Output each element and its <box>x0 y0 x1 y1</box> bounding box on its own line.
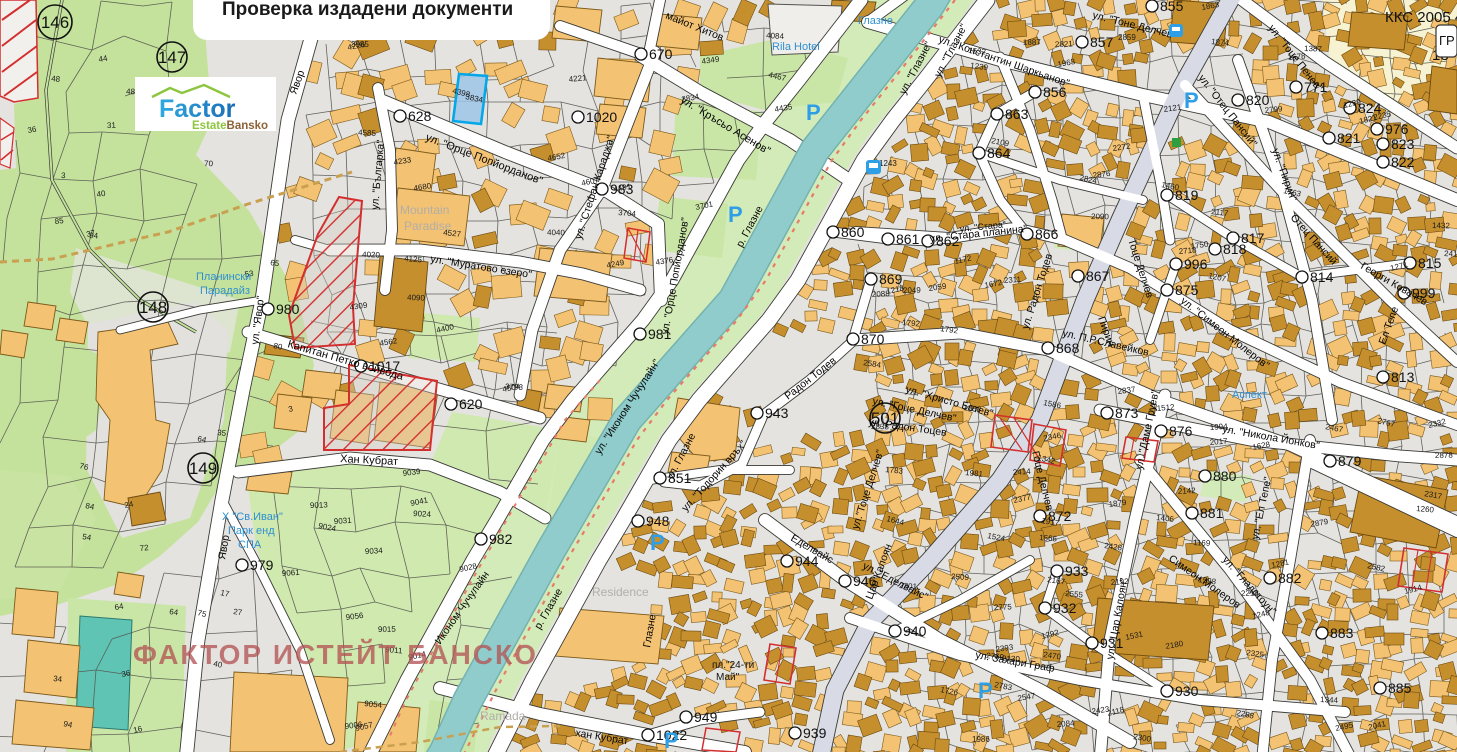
svg-text:857: 857 <box>1090 34 1114 50</box>
svg-text:821: 821 <box>1337 130 1361 146</box>
svg-text:930: 930 <box>1175 683 1199 699</box>
svg-text:9054: 9054 <box>364 699 383 710</box>
svg-text:85: 85 <box>54 216 64 226</box>
svg-text:866: 866 <box>1035 226 1059 242</box>
svg-text:2555: 2555 <box>1065 589 1084 600</box>
svg-text:3985: 3985 <box>351 40 369 49</box>
svg-text:9024: 9024 <box>413 509 432 519</box>
svg-text:48: 48 <box>51 74 61 84</box>
svg-text:2878: 2878 <box>1435 451 1454 460</box>
svg-text:1512: 1512 <box>1156 402 1175 413</box>
svg-text:Paradise: Paradise <box>404 219 452 233</box>
svg-text:ККС 2005 46: ККС 2005 46 <box>1385 9 1457 26</box>
svg-text:861: 861 <box>896 231 920 247</box>
svg-text:933: 933 <box>1065 563 1089 579</box>
svg-text:1887: 1887 <box>1023 38 1042 47</box>
svg-text:P: P <box>650 530 665 555</box>
svg-text:876: 876 <box>1169 423 1193 439</box>
svg-text:2049: 2049 <box>903 286 922 295</box>
svg-text:868: 868 <box>1056 340 1080 356</box>
svg-text:1243: 1243 <box>879 159 897 168</box>
svg-text:4090: 4090 <box>407 293 426 303</box>
svg-text:Проверка издадени документи: Проверка издадени документи <box>222 0 513 20</box>
svg-text:996: 996 <box>1184 256 1208 272</box>
svg-text:980: 980 <box>276 301 300 317</box>
svg-text:2821: 2821 <box>1055 39 1074 49</box>
svg-text:1169: 1169 <box>1193 538 1211 548</box>
svg-text:Парк енд: Парк енд <box>228 525 275 537</box>
svg-text:3704: 3704 <box>618 208 637 219</box>
svg-text:48: 48 <box>126 87 136 96</box>
svg-text:147: 147 <box>158 48 186 67</box>
svg-text:1344: 1344 <box>1320 695 1339 705</box>
svg-text:620: 620 <box>459 396 483 412</box>
svg-text:9013: 9013 <box>310 500 329 510</box>
svg-text:P: P <box>806 100 821 125</box>
svg-text:P: P <box>978 678 993 703</box>
svg-text:35: 35 <box>217 428 227 438</box>
svg-text:940: 940 <box>903 623 927 639</box>
svg-text:ГР: ГР <box>1439 33 1455 48</box>
svg-text:2088: 2088 <box>872 289 891 299</box>
svg-text:860: 860 <box>841 224 865 240</box>
svg-text:932: 932 <box>1053 600 1077 616</box>
svg-text:9061: 9061 <box>282 568 301 578</box>
svg-text:64: 64 <box>169 607 180 617</box>
svg-text:879: 879 <box>1338 453 1362 469</box>
svg-text:1566: 1566 <box>1039 533 1058 544</box>
svg-text:1874: 1874 <box>1211 37 1230 48</box>
svg-text:814: 814 <box>1310 269 1334 285</box>
svg-text:1406: 1406 <box>1156 513 1175 524</box>
svg-text:863: 863 <box>1005 106 1029 122</box>
svg-text:2859: 2859 <box>1118 33 1136 42</box>
svg-text:Аспект: Аспект <box>1232 389 1267 401</box>
svg-text:148: 148 <box>139 298 167 317</box>
svg-text:40: 40 <box>96 189 107 199</box>
svg-text:4040: 4040 <box>547 228 566 237</box>
svg-text:2799: 2799 <box>1264 104 1283 115</box>
svg-text:2084: 2084 <box>1056 718 1075 729</box>
svg-text:2017: 2017 <box>1209 436 1228 447</box>
svg-text:3798: 3798 <box>505 382 524 392</box>
svg-text:Ramada: Ramada <box>480 709 526 723</box>
svg-text:880: 880 <box>1213 468 1237 484</box>
svg-text:823: 823 <box>1391 136 1415 152</box>
svg-text:949: 949 <box>694 709 718 725</box>
svg-text:1020: 1020 <box>586 109 617 125</box>
svg-text:Май": Май" <box>716 672 740 683</box>
svg-text:4585: 4585 <box>358 128 377 138</box>
svg-text:Х "Св.Иван": Х "Св.Иван" <box>222 511 283 523</box>
svg-text:4125: 4125 <box>404 254 423 265</box>
svg-text:2311: 2311 <box>1004 275 1022 285</box>
svg-text:9015: 9015 <box>378 625 397 634</box>
svg-text:818: 818 <box>1223 241 1247 257</box>
svg-text:982: 982 <box>489 531 513 547</box>
svg-text:943: 943 <box>765 405 789 421</box>
svg-text:EstateBansko: EstateBansko <box>192 120 268 132</box>
svg-text:72: 72 <box>139 543 149 553</box>
svg-text:Factor: Factor <box>159 95 236 123</box>
svg-text:976: 976 <box>1385 121 1409 137</box>
svg-text:27: 27 <box>233 607 244 617</box>
svg-text:2410: 2410 <box>1444 249 1457 259</box>
svg-text:948: 948 <box>646 513 670 529</box>
svg-text:979: 979 <box>250 557 274 573</box>
svg-text:Residence: Residence <box>592 585 649 599</box>
svg-text:1783: 1783 <box>885 465 904 476</box>
svg-text:2090: 2090 <box>1091 212 1110 221</box>
svg-text:4084: 4084 <box>766 31 785 41</box>
svg-text:31: 31 <box>107 121 117 130</box>
svg-text:670: 670 <box>649 46 673 62</box>
svg-text:939: 939 <box>803 725 827 741</box>
svg-text:2414: 2414 <box>1013 467 1032 477</box>
svg-text:4221: 4221 <box>568 73 587 84</box>
svg-text:1432: 1432 <box>1432 221 1451 230</box>
svg-text:149: 149 <box>189 459 217 478</box>
svg-text:34: 34 <box>53 674 63 684</box>
svg-text:Планински: Планински <box>196 271 251 283</box>
svg-text:3: 3 <box>61 171 66 180</box>
svg-text:Глазне: Глазне <box>858 15 893 27</box>
svg-text:881: 881 <box>1200 505 1224 521</box>
svg-text:1387: 1387 <box>1304 44 1323 54</box>
svg-text:885: 885 <box>1388 680 1412 696</box>
svg-text:2775: 2775 <box>994 602 1013 612</box>
svg-text:4020: 4020 <box>362 250 381 260</box>
svg-text:Rila Hotel: Rila Hotel <box>772 41 820 53</box>
svg-text:2509: 2509 <box>951 572 970 582</box>
svg-text:Парадайз: Парадайз <box>200 285 250 297</box>
svg-text:ФАКТОР ИСТЕЙТ БАНСКО: ФАКТОР ИСТЕЙТ БАНСКО <box>133 638 538 670</box>
svg-text:882: 882 <box>1278 570 1302 586</box>
svg-text:P: P <box>664 728 679 752</box>
svg-text:867: 867 <box>1086 268 1110 284</box>
svg-text:873: 873 <box>1115 405 1139 421</box>
svg-text:815: 815 <box>1418 255 1442 271</box>
svg-text:1792: 1792 <box>902 318 921 329</box>
svg-text:Mountain: Mountain <box>400 203 449 217</box>
svg-text:65: 65 <box>270 258 281 268</box>
svg-text:9034: 9034 <box>365 546 384 556</box>
svg-text:822: 822 <box>1391 154 1415 170</box>
svg-text:1260: 1260 <box>1416 504 1435 515</box>
svg-text:2142: 2142 <box>1178 486 1197 496</box>
svg-text:883: 883 <box>1330 625 1354 641</box>
svg-text:628: 628 <box>408 108 432 124</box>
svg-text:1986: 1986 <box>972 735 990 744</box>
svg-text:855: 855 <box>1160 0 1184 14</box>
svg-text:P: P <box>728 202 743 227</box>
svg-text:2718: 2718 <box>1178 245 1197 256</box>
svg-text:СПА: СПА <box>238 539 262 551</box>
svg-text:146: 146 <box>41 13 69 32</box>
svg-text:813: 813 <box>1391 369 1415 385</box>
svg-text:1981: 1981 <box>965 468 984 479</box>
svg-text:P: P <box>1184 88 1199 113</box>
svg-text:пл."24-ти: пл."24-ти <box>712 660 754 671</box>
svg-text:870: 870 <box>861 331 885 347</box>
svg-text:70: 70 <box>204 159 214 168</box>
